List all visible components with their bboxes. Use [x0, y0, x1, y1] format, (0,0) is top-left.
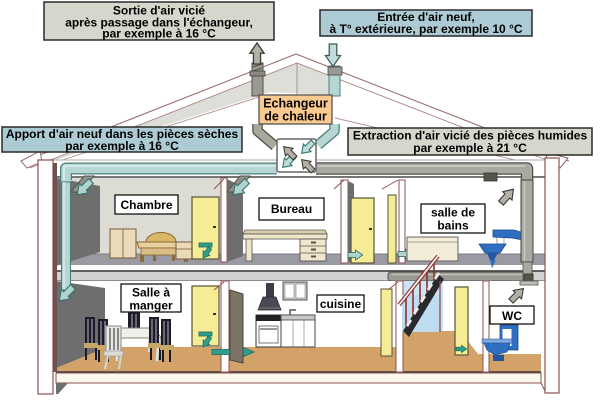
svg-text:cuisine: cuisine	[320, 297, 362, 311]
svg-text:par exemple à 16 °C: par exemple à 16 °C	[102, 27, 216, 41]
svg-text:WC: WC	[502, 309, 522, 323]
svg-text:par exemple à 16 °C: par exemple à 16 °C	[65, 139, 179, 153]
svg-text:salle de: salle de	[431, 206, 475, 220]
svg-text:bains: bains	[437, 219, 469, 233]
svg-text:Bureau: Bureau	[271, 202, 312, 216]
svg-text:manger: manger	[129, 299, 173, 313]
svg-text:Chambre: Chambre	[120, 198, 172, 212]
svg-text:à T° extérieure, par exemple 1: à T° extérieure, par exemple 10 °C	[329, 22, 522, 36]
svg-text:de chaleur: de chaleur	[264, 110, 327, 124]
svg-text:Echangeur: Echangeur	[263, 97, 328, 111]
svg-text:Salle à: Salle à	[132, 286, 170, 300]
svg-text:par exemple à 21 °C: par exemple à 21 °C	[413, 141, 527, 155]
